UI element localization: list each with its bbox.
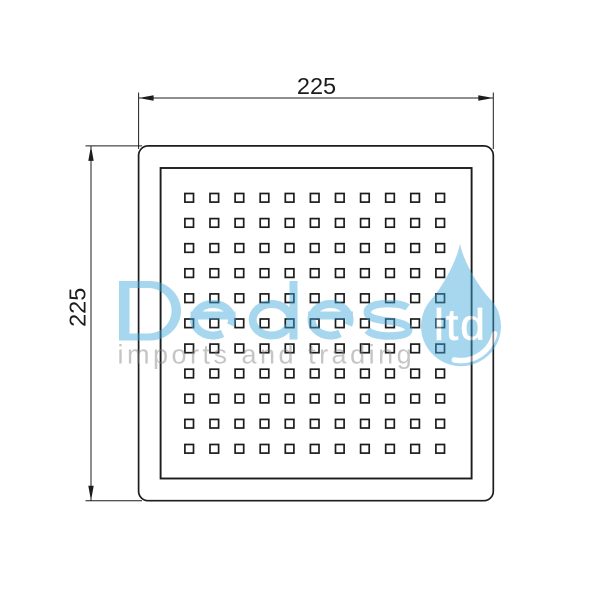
svg-text:ltd: ltd	[434, 302, 487, 350]
svg-text:imports and trading: imports and trading	[118, 340, 416, 370]
svg-text:225: 225	[297, 73, 336, 99]
svg-text:225: 225	[64, 288, 90, 327]
